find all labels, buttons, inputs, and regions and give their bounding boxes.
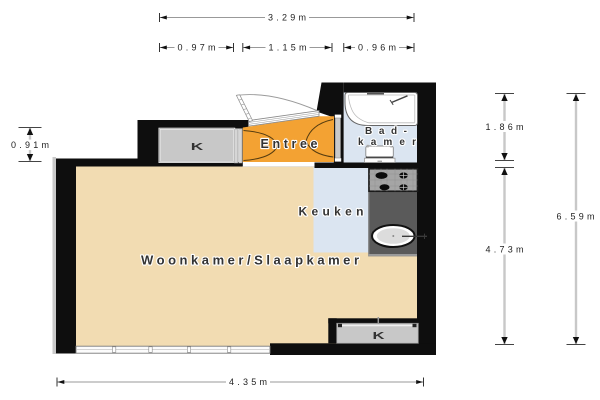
svg-text:K: K: [373, 331, 386, 342]
svg-text:K: K: [191, 142, 205, 153]
